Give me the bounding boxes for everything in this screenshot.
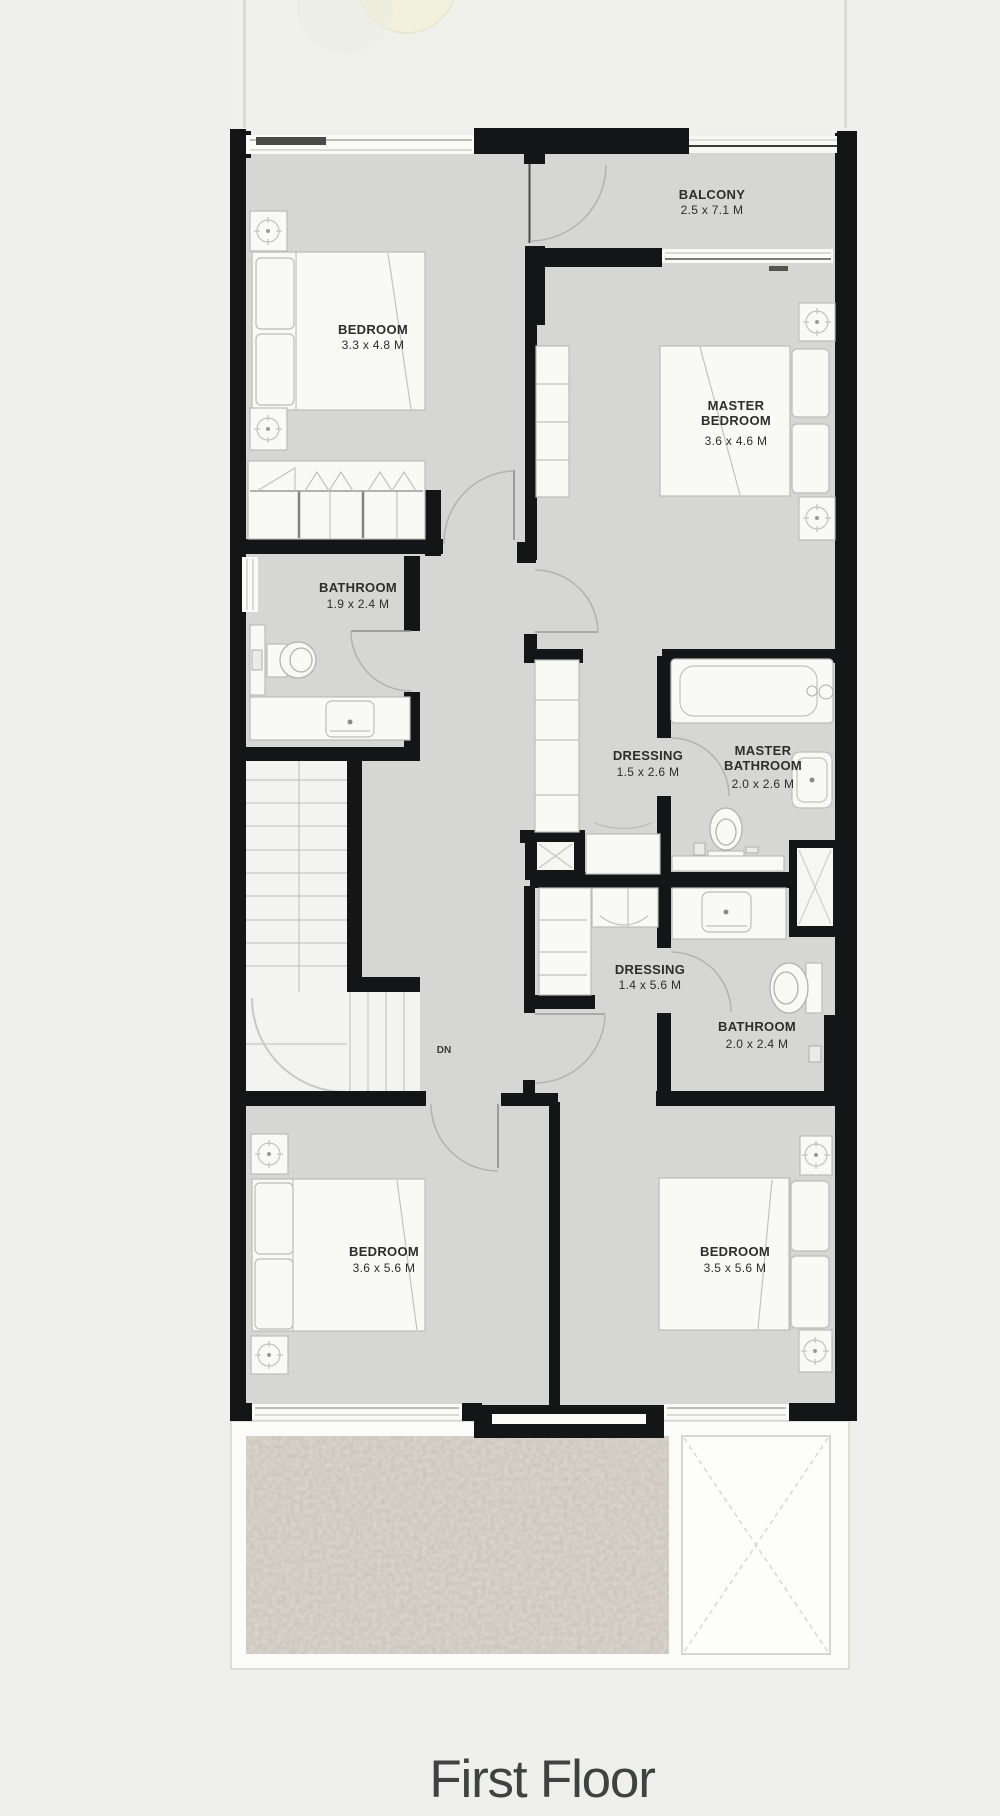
svg-text:BATHROOM: BATHROOM (319, 580, 397, 595)
svg-text:DRESSING: DRESSING (615, 962, 685, 977)
svg-text:BALCONY: BALCONY (679, 187, 745, 202)
svg-text:1.5 x 2.6 M: 1.5 x 2.6 M (617, 765, 680, 779)
svg-text:BEDROOM: BEDROOM (700, 1244, 770, 1259)
svg-text:2.0 x 2.6 M: 2.0 x 2.6 M (732, 777, 795, 791)
svg-text:BEDROOM: BEDROOM (349, 1244, 419, 1259)
svg-text:3.5 x 5.6 M: 3.5 x 5.6 M (704, 1261, 767, 1275)
svg-text:1.9 x 2.4 M: 1.9 x 2.4 M (327, 597, 390, 611)
svg-text:BEDROOM: BEDROOM (338, 322, 408, 337)
svg-text:BEDROOM: BEDROOM (701, 413, 771, 428)
svg-text:BATHROOM: BATHROOM (724, 758, 802, 773)
svg-text:3.6 x 4.6 M: 3.6 x 4.6 M (705, 434, 768, 448)
svg-text:2.5 x 7.1 M: 2.5 x 7.1 M (681, 203, 744, 217)
svg-text:3.3 x 4.8 M: 3.3 x 4.8 M (342, 338, 405, 352)
svg-text:MASTER: MASTER (735, 743, 792, 758)
svg-text:DRESSING: DRESSING (613, 748, 683, 763)
svg-text:3.6 x 5.6 M: 3.6 x 5.6 M (353, 1261, 416, 1275)
svg-text:DN: DN (437, 1045, 451, 1056)
svg-text:2.0 x 2.4 M: 2.0 x 2.4 M (726, 1037, 789, 1051)
svg-text:BATHROOM: BATHROOM (718, 1019, 796, 1034)
svg-text:First Floor: First Floor (429, 1750, 655, 1809)
svg-text:1.4 x 5.6 M: 1.4 x 5.6 M (619, 978, 682, 992)
svg-text:MASTER: MASTER (708, 398, 765, 413)
